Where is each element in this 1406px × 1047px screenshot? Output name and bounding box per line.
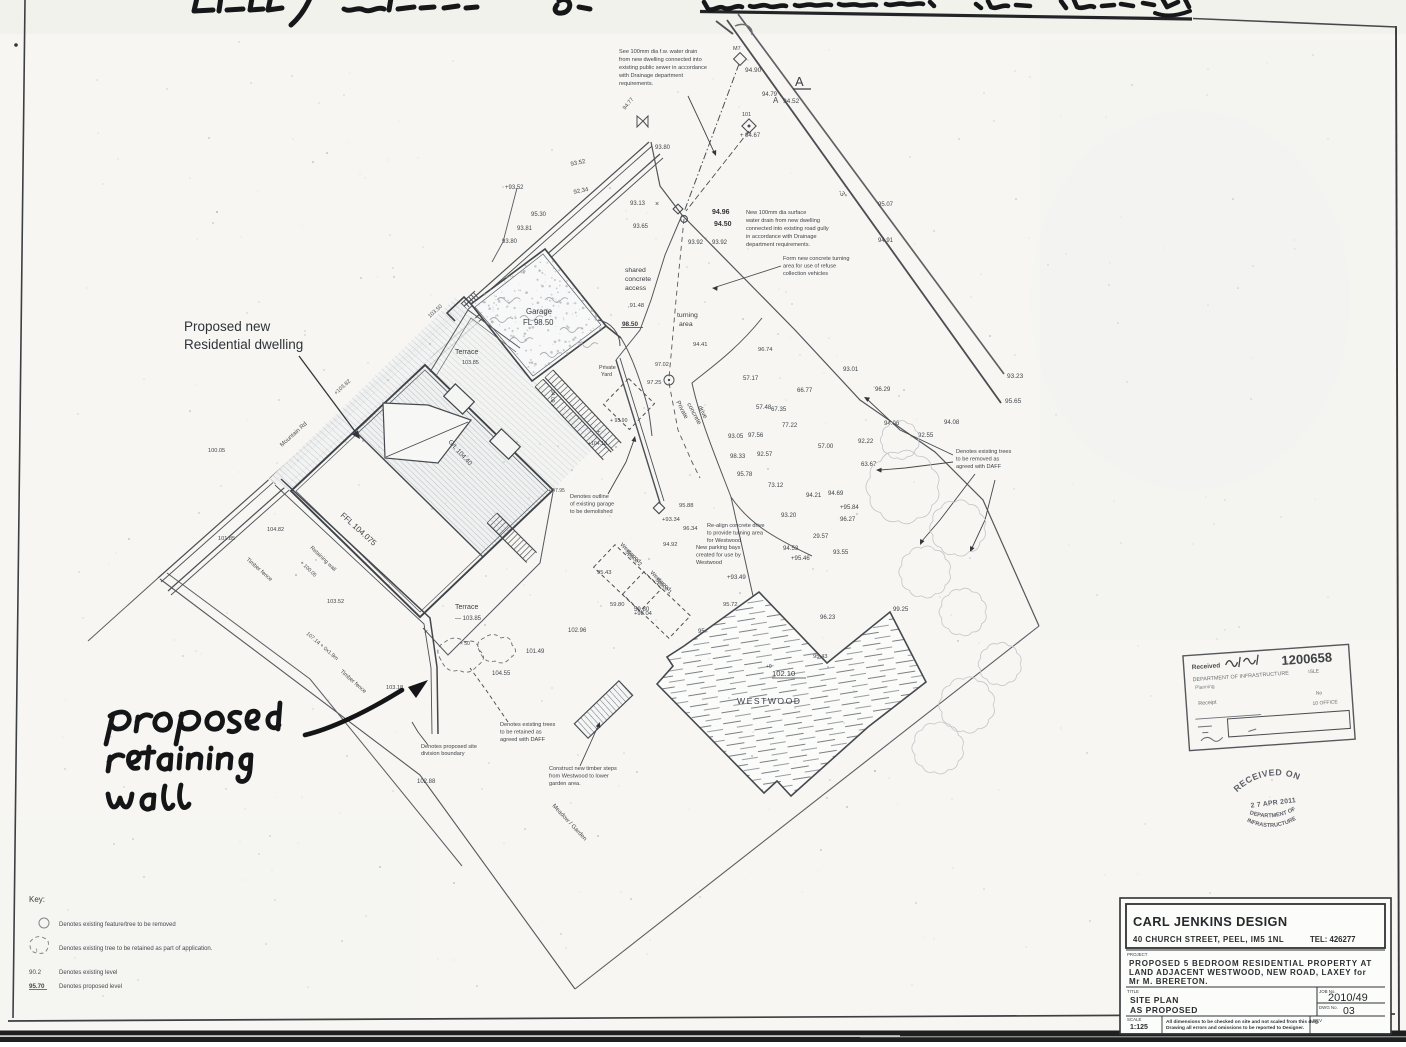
svg-text:New parking bays: New parking bays [696, 545, 741, 551]
svg-text:97.02: 97.02 [655, 362, 669, 368]
svg-text:SCALE: SCALE [1127, 1017, 1141, 1022]
svg-text:SITE PLAN: SITE PLAN [1130, 995, 1179, 1005]
svg-text:93.20: 93.20 [781, 512, 797, 519]
svg-text:×: × [655, 201, 659, 208]
svg-text:department requirements.: department requirements. [746, 242, 810, 248]
svg-text:96.34: 96.34 [683, 526, 698, 532]
svg-text:94.09 +: 94.09 + [549, 390, 555, 407]
svg-text:95.88: 95.88 [679, 503, 694, 509]
svg-text:97.56: 97.56 [748, 432, 764, 439]
svg-text:94.06: 94.06 [884, 420, 900, 427]
svg-text:95.30: 95.30 [531, 212, 547, 218]
svg-text:to be removed as: to be removed as [956, 457, 999, 463]
svg-text:95.72: 95.72 [723, 602, 738, 608]
svg-text:— 103.85: — 103.85 [455, 616, 482, 622]
svg-text:101.49: 101.49 [526, 649, 545, 655]
svg-text:102.10: 102.10 [772, 669, 795, 678]
svg-text:+104.10: +104.10 [588, 441, 607, 447]
svg-text:collection vehicles: collection vehicles [783, 271, 828, 277]
svg-text:Re-align concrete drive: Re-align concrete drive [707, 523, 765, 529]
svg-text:CARL JENKINS DESIGN: CARL JENKINS DESIGN [1133, 914, 1288, 929]
svg-text:Denotes existing level: Denotes existing level [59, 970, 117, 976]
svg-text:92.22: 92.22 [858, 438, 874, 445]
svg-text:92.57: 92.57 [757, 451, 773, 458]
svg-text:1:125: 1:125 [1130, 1024, 1148, 1031]
svg-text:Private: Private [599, 365, 616, 371]
svg-text:Denotes proposed level: Denotes proposed level [59, 984, 122, 990]
svg-text:94.41: 94.41 [693, 342, 708, 348]
svg-text:agreed with DAFF: agreed with DAFF [956, 464, 1002, 470]
svg-text:94.08: 94.08 [944, 419, 960, 426]
svg-text:93.05: 93.05 [728, 433, 744, 440]
svg-text:95.65: 95.65 [1005, 398, 1022, 405]
svg-text:101: 101 [742, 112, 751, 118]
svg-text:connected into existing road g: connected into existing road gully [746, 226, 829, 232]
svg-text:TITLE: TITLE [1127, 989, 1139, 994]
svg-text:WESTWOOD: WESTWOOD [737, 696, 802, 706]
svg-text:Residential dwelling: Residential dwelling [184, 337, 303, 352]
svg-text:93.13: 93.13 [630, 201, 646, 207]
svg-text:94.50: 94.50 [714, 221, 732, 228]
svg-text:103.52: 103.52 [327, 599, 344, 605]
svg-text:92.55: 92.55 [918, 432, 934, 439]
svg-text:93.92: 93.92 [688, 240, 704, 246]
svg-text:PROJECT: PROJECT [1127, 952, 1148, 957]
svg-text:95.07: 95.07 [878, 202, 894, 208]
svg-text:FL 98.50: FL 98.50 [523, 318, 554, 327]
svg-text:104.82: 104.82 [267, 527, 284, 533]
svg-text:96.23: 96.23 [820, 614, 836, 621]
svg-text:94.53: 94.53 [783, 545, 799, 552]
svg-text:No: No [1316, 690, 1323, 696]
svg-text:100.05: 100.05 [208, 448, 225, 454]
svg-text:93.92: 93.92 [712, 240, 728, 246]
svg-text:+0: +0 [766, 664, 772, 670]
svg-text:from Westwood to lower: from Westwood to lower [549, 774, 609, 780]
svg-text:Key:: Key: [29, 895, 45, 904]
svg-text:98.50: 98.50 [622, 321, 638, 328]
svg-text:Mr M. BRERETON.: Mr M. BRERETON. [1129, 977, 1208, 986]
svg-text:water drain from new dwelling: water drain from new dwelling [745, 218, 820, 224]
svg-text:102.88: 102.88 [417, 779, 436, 785]
svg-text:access: access [625, 285, 647, 292]
svg-text:40 CHURCH STREET, PEEL, IM5 1N: 40 CHURCH STREET, PEEL, IM5 1NL [1133, 935, 1284, 944]
svg-text:+95.46: +95.46 [791, 555, 810, 562]
svg-text:+93.52: +93.52 [505, 185, 524, 191]
svg-text:+93.49: +93.49 [727, 574, 746, 581]
svg-text:2010/49: 2010/49 [1328, 992, 1368, 1004]
svg-text:29.57: 29.57 [813, 533, 829, 540]
svg-text:New 100mm dia surface: New 100mm dia surface [746, 210, 806, 216]
svg-text:of existing garage: of existing garage [570, 502, 614, 508]
svg-text:Westwood: Westwood [696, 560, 722, 566]
svg-text:Form new concrete turning: Form new concrete turning [783, 256, 850, 262]
svg-text:existing public sewer in accor: existing public sewer in accordance [619, 65, 707, 71]
svg-text:66.77: 66.77 [797, 387, 813, 394]
svg-text:03: 03 [1343, 1005, 1355, 1017]
svg-text:101.85: 101.85 [218, 536, 235, 542]
svg-text:to be demolished: to be demolished [570, 509, 613, 515]
svg-text:97.25: 97.25 [647, 380, 662, 386]
svg-text:requirements.: requirements. [619, 81, 654, 87]
svg-text:94.69: 94.69 [828, 490, 844, 497]
svg-text:agreed with DAFF: agreed with DAFF [500, 737, 546, 743]
svg-text:94.90: 94.90 [745, 67, 762, 74]
svg-text:103.85: 103.85 [462, 360, 479, 366]
svg-text:94.79: 94.79 [762, 92, 778, 98]
svg-text:94.91: 94.91 [878, 238, 894, 244]
svg-text:73.12: 73.12 [768, 482, 784, 489]
svg-text:90.2: 90.2 [29, 969, 42, 976]
svg-text:Terrace: Terrace [455, 604, 478, 611]
svg-text:104.55: 104.55 [492, 671, 511, 677]
svg-text:A: A [795, 74, 804, 89]
svg-text:shared: shared [625, 267, 646, 274]
svg-text:area for use of refuse: area for use of refuse [783, 264, 836, 270]
svg-text:division boundary: division boundary [421, 751, 465, 757]
svg-text:Denotes outline: Denotes outline [570, 494, 609, 500]
svg-text:area: area [679, 321, 693, 328]
svg-text:+: + [597, 430, 601, 436]
svg-text:94.96: 94.96 [712, 209, 730, 216]
svg-text:+93.34: +93.34 [662, 517, 681, 523]
svg-text:94.92: 94.92 [663, 542, 678, 548]
svg-text:+ 97.95: + 97.95 [548, 488, 565, 494]
svg-text:99.25: 99.25 [893, 606, 909, 613]
svg-text:for Westwood: for Westwood [707, 538, 741, 544]
svg-text:96.27: 96.27 [840, 516, 856, 523]
svg-text:PROPOSED 5 BEDROOM RESIDENTIAL: PROPOSED 5 BEDROOM RESIDENTIAL PROPERTY … [1129, 959, 1372, 968]
svg-text:TEL: 426277: TEL: 426277 [1310, 935, 1356, 944]
svg-text:Construct new timber steps: Construct new timber steps [549, 766, 617, 772]
svg-text:to provide turning area: to provide turning area [707, 531, 764, 537]
svg-text:98.33: 98.33 [730, 453, 746, 460]
svg-text:M7: M7 [733, 46, 741, 52]
svg-text:93.81: 93.81 [517, 226, 533, 232]
svg-text:96.29: 96.29 [875, 386, 891, 393]
svg-text:All dimensions to be checked o: All dimensions to be checked on site and… [1166, 1019, 1319, 1025]
svg-text:102.96: 102.96 [568, 628, 587, 634]
svg-text:57.17: 57.17 [743, 375, 759, 382]
svg-text:turning: turning [677, 312, 698, 319]
svg-text:94.52: 94.52 [783, 98, 800, 105]
svg-text:created for use by: created for use by [696, 553, 741, 559]
svg-text:Denotes existing trees: Denotes existing trees [956, 449, 1012, 455]
svg-text:,91.48: ,91.48 [628, 303, 644, 309]
svg-text:Denotes existing trees: Denotes existing trees [500, 722, 556, 728]
svg-text:Denotes existing tree to be re: Denotes existing tree to be retained as … [59, 946, 213, 952]
svg-text:Denotes proposed site: Denotes proposed site [421, 744, 477, 750]
svg-text:Terrace: Terrace [455, 349, 478, 356]
svg-text:See 100mm dia f.w. water drain: See 100mm dia f.w. water drain [619, 49, 697, 55]
svg-text:garden area.: garden area. [549, 781, 581, 787]
svg-text:ISLE: ISLE [1308, 668, 1320, 675]
svg-text:95.43: 95.43 [813, 654, 828, 660]
svg-text:94.21: 94.21 [806, 492, 822, 499]
svg-text:+95.84: +95.84 [840, 504, 859, 511]
svg-text:+98.04: +98.04 [634, 611, 653, 617]
svg-text:93.80: 93.80 [502, 239, 518, 245]
svg-text:Drawing all errors and omissio: Drawing all errors and omissions to be r… [1166, 1025, 1304, 1031]
svg-text:concrete: concrete [625, 276, 651, 283]
svg-text:Yard: Yard [601, 372, 612, 378]
svg-text:Denotes existing feature/tree: Denotes existing feature/tree to be remo… [59, 922, 176, 928]
svg-text:93.80: 93.80 [655, 145, 671, 151]
svg-text:77.22: 77.22 [782, 422, 798, 429]
svg-text:59.80: 59.80 [610, 602, 625, 608]
svg-text:96.74: 96.74 [758, 347, 773, 353]
svg-text:93.55: 93.55 [833, 549, 849, 556]
svg-text:57.00: 57.00 [818, 443, 834, 450]
svg-text:Proposed new: Proposed new [184, 319, 271, 334]
svg-text:93.65: 93.65 [633, 224, 649, 230]
svg-text:Garage: Garage [526, 307, 552, 316]
svg-text:93.01: 93.01 [843, 366, 859, 373]
svg-text:93.23: 93.23 [1007, 373, 1024, 380]
svg-text:57.48: 57.48 [756, 404, 772, 411]
svg-text:95.78: 95.78 [737, 471, 753, 478]
svg-text:67.35: 67.35 [771, 406, 787, 413]
svg-text:LAND ADJACENT WESTWOOD, NEW RO: LAND ADJACENT WESTWOOD, NEW ROAD, LAXEY … [1129, 968, 1366, 977]
svg-text:to be retained as: to be retained as [500, 730, 542, 736]
svg-text:from new dwelling connected in: from new dwelling connected into [619, 57, 702, 63]
svg-text:AS PROPOSED: AS PROPOSED [1130, 1005, 1198, 1015]
svg-text:DWG No.: DWG No. [1319, 1005, 1338, 1010]
svg-text:in accordance with Drainage: in accordance with Drainage [746, 234, 817, 240]
svg-text:with Drainage department: with Drainage department [618, 73, 683, 79]
svg-text:95.70: 95.70 [29, 983, 45, 990]
svg-text:REV: REV [1313, 1018, 1322, 1023]
